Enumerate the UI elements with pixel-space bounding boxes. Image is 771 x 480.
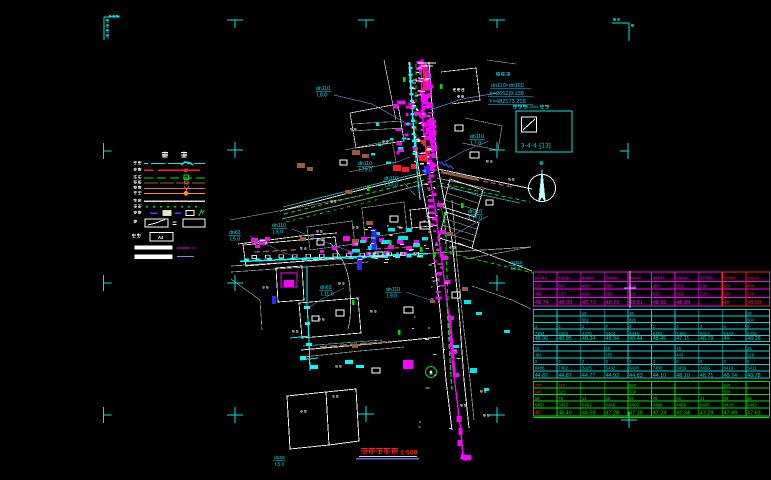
svg-text:6447: 6447 [700, 403, 710, 408]
svg-text:14: 14 [582, 396, 587, 401]
svg-text:4493: 4493 [629, 403, 639, 408]
svg-text:93: 93 [629, 396, 634, 401]
svg-text:dn110: dn110 [510, 260, 523, 265]
svg-text:9#64A: 9#64A [653, 276, 666, 281]
svg-text:3#64A: 3#64A [747, 276, 760, 281]
svg-text:9439: 9439 [676, 366, 686, 371]
svg-text:L8.0: L8.0 [317, 93, 327, 99]
svg-text:48.79: 48.79 [700, 336, 714, 342]
svg-text:8486: 8486 [535, 366, 545, 371]
svg-text:484: 484 [747, 284, 755, 289]
svg-text:66: 66 [606, 396, 611, 401]
svg-text:821: 821 [653, 292, 661, 297]
svg-text:15: 15 [535, 346, 540, 351]
svg-text:830: 830 [747, 292, 755, 297]
svg-text:48.76: 48.76 [606, 300, 620, 306]
svg-text:8419: 8419 [724, 366, 734, 371]
svg-text:4#24A: 4#24A [558, 276, 571, 281]
svg-text:9417: 9417 [700, 331, 710, 336]
svg-text:523: 523 [535, 284, 543, 289]
svg-text:15: 15 [582, 311, 587, 316]
svg-text:59: 59 [535, 396, 540, 401]
svg-text:4#: 4# [724, 336, 730, 342]
svg-text:L43.0: L43.0 [385, 183, 398, 189]
svg-text:3498: 3498 [653, 403, 663, 408]
svg-text:64#: 64# [629, 383, 637, 388]
svg-text:44.87: 44.87 [535, 373, 549, 379]
svg-text:48.74: 48.74 [724, 373, 738, 379]
svg-text:6#74A: 6#74A [535, 276, 548, 281]
svg-text:769: 769 [724, 292, 732, 297]
svg-text:L5.0: L5.0 [273, 230, 283, 236]
svg-text:dn110×dn160: dn110×dn160 [491, 83, 524, 89]
svg-text:48.82: 48.82 [653, 300, 667, 306]
svg-text:15: 15 [747, 311, 752, 316]
svg-text:7450: 7450 [653, 366, 663, 371]
svg-text:L5.0: L5.0 [230, 237, 240, 243]
svg-text:581: 581 [676, 292, 684, 297]
svg-text:48.60: 48.60 [747, 300, 761, 306]
svg-text:3-4-4-[13]: 3-4-4-[13] [521, 144, 551, 150]
svg-text:6457: 6457 [535, 403, 545, 408]
svg-text:L7.0: L7.0 [471, 141, 481, 147]
svg-text:7461: 7461 [676, 331, 686, 336]
svg-text:4449: 4449 [629, 331, 639, 336]
svg-text:44.59: 44.59 [582, 411, 596, 417]
svg-text:797: 797 [558, 292, 566, 297]
svg-text:508: 508 [724, 389, 732, 394]
svg-text:5432: 5432 [606, 366, 616, 371]
svg-text:48.95: 48.95 [558, 336, 572, 342]
svg-text:228: 228 [747, 353, 755, 358]
svg-text:3433: 3433 [558, 403, 568, 408]
svg-text:47.19: 47.19 [629, 411, 643, 417]
svg-text:48.44: 48.44 [629, 336, 643, 342]
svg-text:443: 443 [676, 353, 684, 358]
svg-text:61#: 61# [558, 383, 566, 388]
svg-text:L3.0: L3.0 [511, 266, 520, 271]
svg-text:47.28: 47.28 [606, 411, 620, 417]
svg-text:381: 381 [535, 353, 543, 358]
svg-text:441: 441 [535, 292, 543, 297]
svg-text:48.78: 48.78 [747, 373, 761, 379]
svg-text:6442: 6442 [747, 403, 757, 408]
svg-text:Y=482173.218: Y=482173.218 [489, 99, 526, 105]
svg-text:4470: 4470 [582, 331, 592, 336]
svg-text:L5.0: L5.0 [275, 461, 285, 467]
svg-text:6452: 6452 [653, 331, 663, 336]
svg-text:44.10: 44.10 [653, 373, 667, 379]
svg-text:47.63: 47.63 [747, 411, 761, 417]
svg-text:6442: 6442 [724, 331, 734, 336]
svg-text:A4: A4 [158, 235, 164, 240]
svg-text:463: 463 [582, 292, 590, 297]
svg-text:48.26: 48.26 [747, 336, 761, 342]
svg-text:5461: 5461 [582, 403, 592, 408]
svg-text:536: 536 [700, 284, 708, 289]
svg-text:3464: 3464 [606, 331, 616, 336]
svg-text:78: 78 [558, 396, 563, 401]
svg-text:4496: 4496 [676, 403, 686, 408]
svg-text:48.49: 48.49 [558, 411, 572, 417]
svg-text:7494: 7494 [535, 331, 545, 336]
svg-text:906: 906 [606, 284, 614, 289]
svg-text:651: 651 [676, 284, 684, 289]
svg-text:148: 148 [535, 389, 543, 394]
svg-text:3424: 3424 [558, 331, 568, 336]
svg-text:77#: 77# [535, 383, 543, 388]
svg-text:4449: 4449 [606, 403, 616, 408]
svg-text:48.34: 48.34 [582, 336, 596, 342]
svg-text:LT9.0: LT9.0 [359, 168, 372, 174]
svg-text:6426: 6426 [747, 331, 757, 336]
svg-text:458: 458 [582, 284, 590, 289]
svg-text:9#44A: 9#44A [629, 276, 642, 281]
svg-text:47.49: 47.49 [724, 411, 738, 417]
svg-text:8#44A: 8#44A [606, 276, 619, 281]
svg-text:48.73: 48.73 [582, 300, 596, 306]
svg-text:5411: 5411 [747, 366, 757, 371]
svg-text:66: 66 [724, 396, 729, 401]
svg-text:508: 508 [629, 389, 637, 394]
svg-text:1:500: 1:500 [400, 450, 418, 457]
svg-text:66: 66 [747, 396, 752, 401]
svg-text:47.34: 47.34 [676, 411, 690, 417]
svg-text:4#: 4# [724, 300, 731, 306]
svg-text:47.29: 47.29 [700, 411, 714, 417]
svg-text:61#: 61# [724, 383, 732, 388]
svg-text:41: 41 [700, 396, 705, 401]
svg-text:48.94: 48.94 [606, 336, 620, 342]
svg-text:15: 15 [629, 311, 634, 316]
svg-text:L11.0: L11.0 [321, 292, 334, 298]
svg-text:44.83: 44.83 [629, 373, 643, 379]
svg-text:49: 49 [653, 396, 658, 401]
svg-text:15: 15 [747, 346, 752, 351]
svg-text:3425: 3425 [582, 366, 592, 371]
svg-text:50: 50 [676, 396, 681, 401]
svg-text:48.45: 48.45 [653, 336, 667, 342]
svg-text:X=2662|9.138: X=2662|9.138 [489, 91, 524, 97]
svg-text:15: 15 [606, 346, 611, 351]
svg-text:959: 959 [606, 292, 614, 297]
svg-text:9420: 9420 [724, 403, 734, 408]
svg-text:6#64A: 6#64A [676, 276, 689, 281]
svg-text:720: 720 [700, 292, 708, 297]
svg-text:6428: 6428 [629, 366, 639, 371]
svg-text:47.24: 47.24 [653, 411, 667, 417]
svg-text:8#94A: 8#94A [582, 276, 595, 281]
svg-text:44.77: 44.77 [582, 373, 596, 379]
svg-text:459: 459 [653, 284, 661, 289]
svg-text:567: 567 [558, 284, 566, 289]
svg-text:48.71: 48.71 [700, 373, 714, 379]
svg-text:L77.0: L77.0 [469, 216, 482, 222]
svg-text:7462: 7462 [558, 366, 568, 371]
svg-text:3456: 3456 [700, 366, 710, 371]
svg-text:4#: 4# [535, 411, 541, 417]
svg-text:47.11: 47.11 [676, 336, 689, 342]
svg-text:48.93: 48.93 [558, 300, 572, 306]
svg-text:974: 974 [724, 284, 732, 289]
svg-text:321: 321 [558, 389, 566, 394]
svg-text:15: 15 [676, 346, 681, 351]
svg-text:555: 555 [606, 353, 614, 358]
svg-text:48.10: 48.10 [676, 373, 690, 379]
svg-text:504: 504 [747, 318, 755, 323]
svg-text:582: 582 [582, 318, 590, 323]
svg-text:6#94A: 6#94A [724, 276, 737, 281]
svg-text:48.74: 48.74 [535, 300, 549, 306]
svg-text:44.87: 44.87 [558, 373, 572, 379]
svg-text:44.93: 44.93 [606, 373, 620, 379]
svg-text:1:2000: 1:2000 [527, 105, 539, 109]
svg-text:3#74A: 3#74A [700, 276, 713, 281]
svg-text:48.96: 48.96 [535, 336, 549, 342]
svg-text:48.81: 48.81 [629, 300, 643, 306]
svg-text:L9.0: L9.0 [387, 294, 397, 300]
svg-text:48.84: 48.84 [676, 300, 690, 306]
svg-text:426: 426 [629, 318, 637, 323]
